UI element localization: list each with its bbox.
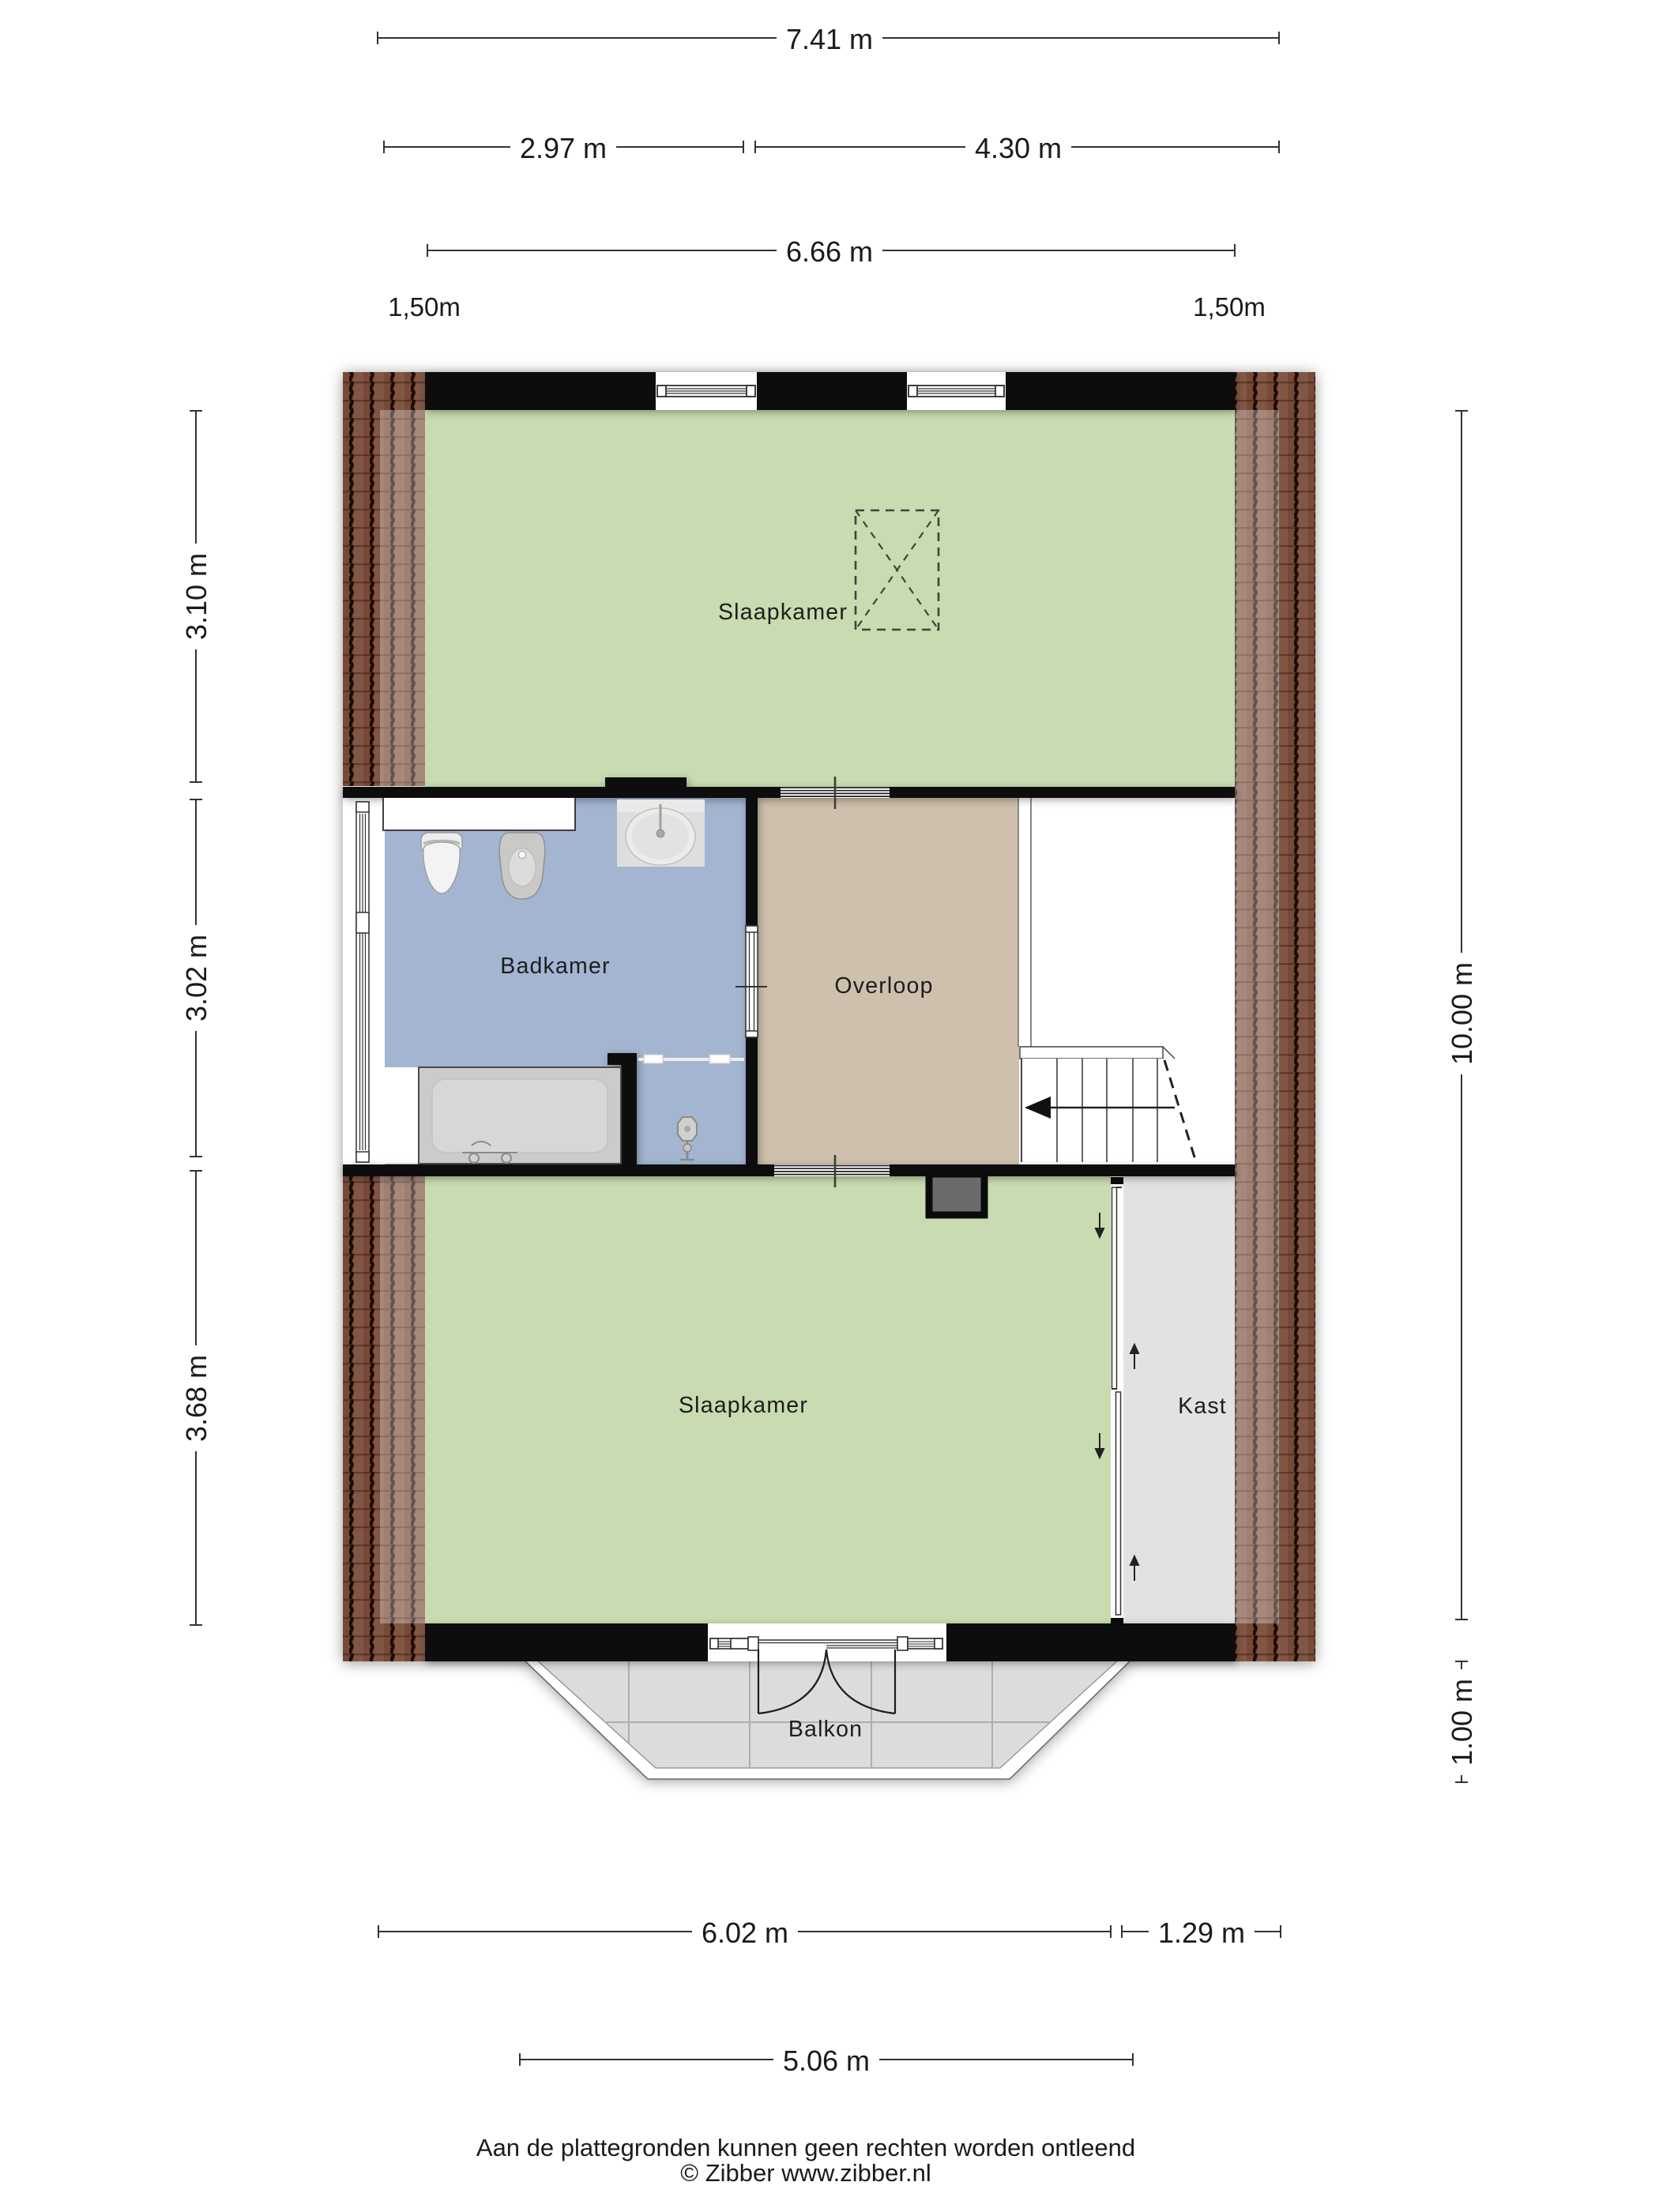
svg-text:3.10 m: 3.10 m [180,553,213,640]
svg-text:10.00 m: 10.00 m [1446,962,1478,1065]
svg-text:Overloop: Overloop [834,973,933,999]
svg-text:1,50m: 1,50m [388,292,461,322]
svg-text:1.00 m: 1.00 m [1446,1679,1478,1766]
svg-text:© Zibber www.zibber.nl: © Zibber www.zibber.nl [680,2159,931,2187]
svg-text:3.02 m: 3.02 m [180,935,213,1021]
svg-text:4.30 m: 4.30 m [975,132,1062,164]
svg-text:3.68 m: 3.68 m [180,1355,213,1442]
svg-text:Badkamer: Badkamer [500,954,611,979]
svg-text:2.97 m: 2.97 m [520,132,607,164]
svg-text:Kast: Kast [1178,1394,1227,1419]
svg-text:6.02 m: 6.02 m [702,1917,788,1949]
svg-text:5.06 m: 5.06 m [783,2045,870,2077]
svg-text:Aan de plattegronden kunnen ge: Aan de plattegronden kunnen geen rechten… [476,2134,1135,2161]
svg-text:Balkon: Balkon [788,1717,863,1742]
svg-text:7.41 m: 7.41 m [786,23,873,55]
svg-text:1.29 m: 1.29 m [1158,1917,1245,1949]
svg-text:1,50m: 1,50m [1193,292,1266,322]
svg-text:Slaapkamer: Slaapkamer [679,1393,808,1418]
svg-text:Slaapkamer: Slaapkamer [718,600,848,625]
svg-text:6.66 m: 6.66 m [786,235,873,268]
